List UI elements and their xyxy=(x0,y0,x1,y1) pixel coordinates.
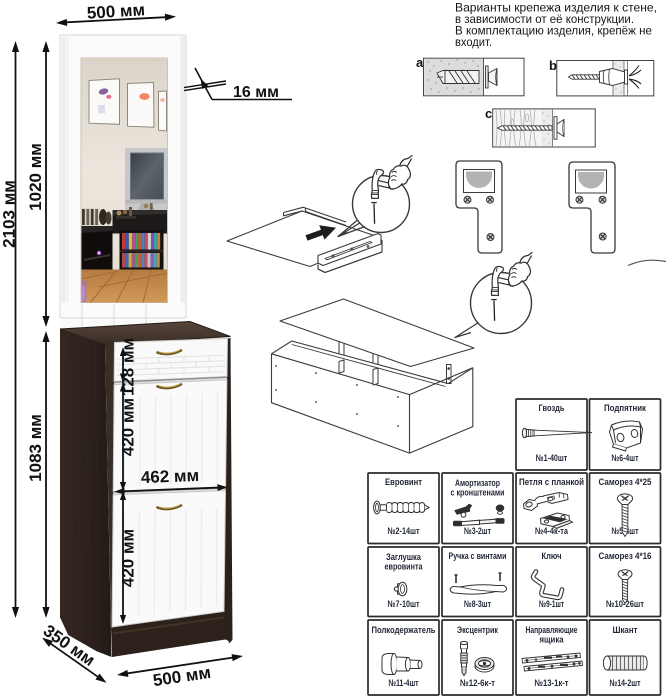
svg-text:1020 мм: 1020 мм xyxy=(26,143,45,211)
svg-text:№1-40шт: №1-40шт xyxy=(536,453,568,464)
svg-text:№8-3шт: №8-3шт xyxy=(464,599,491,610)
svg-text:b: b xyxy=(549,58,557,73)
svg-text:Саморез 4*16: Саморез 4*16 xyxy=(599,551,652,562)
svg-text:500 мм: 500 мм xyxy=(86,0,145,23)
svg-text:420 мм: 420 мм xyxy=(119,529,138,587)
svg-text:с кронштенами: с кронштенами xyxy=(451,488,505,499)
svg-text:№7-10шт: №7-10шт xyxy=(388,599,420,610)
svg-text:№9-1шт: №9-1шт xyxy=(539,599,564,610)
svg-text:№2-14шт: №2-14шт xyxy=(388,526,420,537)
svg-text:Подпятник: Подпятник xyxy=(604,403,646,414)
svg-text:Шкант: Шкант xyxy=(613,625,638,636)
svg-text:Ключ: Ключ xyxy=(542,551,562,562)
svg-text:Саморез 4*25: Саморез 4*25 xyxy=(599,477,653,488)
svg-text:Ручка с винтами: Ручка с винтами xyxy=(449,551,507,562)
svg-text:Евровинт: Евровинт xyxy=(385,477,422,488)
svg-text:Полкодержатель: Полкодержатель xyxy=(372,625,436,636)
svg-text:2103 мм: 2103 мм xyxy=(0,180,19,248)
svg-text:420 мм: 420 мм xyxy=(119,398,138,456)
svg-text:Эксцентрик: Эксцентрик xyxy=(457,625,498,636)
svg-text:№14-2шт: №14-2шт xyxy=(610,678,641,689)
svg-text:462 мм: 462 мм xyxy=(141,466,200,487)
svg-text:№13-1к-т: №13-1к-т xyxy=(535,678,569,689)
svg-text:128 мм: 128 мм xyxy=(119,338,138,396)
svg-text:a: a xyxy=(416,55,424,70)
svg-text:№3-2шт: №3-2шт xyxy=(464,526,491,537)
svg-text:№12-6к-т: №12-6к-т xyxy=(460,678,495,689)
svg-text:евровинта: евровинта xyxy=(385,562,424,573)
svg-text:ящика: ящика xyxy=(540,635,565,646)
svg-text:Петля с планкой: Петля с планкой xyxy=(519,477,584,488)
svg-text:входит.: входит. xyxy=(455,35,492,49)
svg-text:1083 мм: 1083 мм xyxy=(26,414,45,482)
svg-text:№6-4шт: №6-4шт xyxy=(612,453,639,464)
svg-text:Гвоздь: Гвоздь xyxy=(539,403,565,414)
svg-text:№11-4шт: №11-4шт xyxy=(389,678,419,689)
svg-text:c: c xyxy=(485,106,492,121)
svg-text:№4-4к-та: №4-4к-та xyxy=(535,526,569,537)
svg-text:16 мм: 16 мм xyxy=(233,84,279,101)
svg-text:500 мм: 500 мм xyxy=(152,663,212,690)
